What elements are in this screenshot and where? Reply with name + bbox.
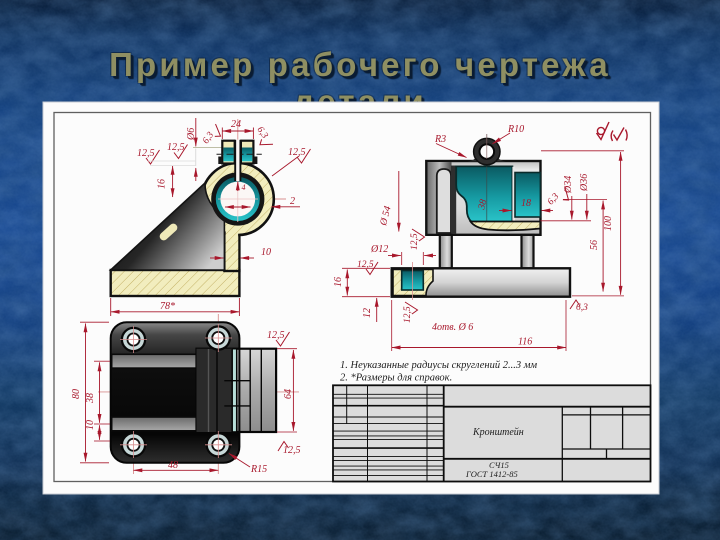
svg-text:6,3: 6,3	[576, 303, 588, 313]
svg-text:Ø34: Ø34	[563, 176, 574, 194]
svg-text:4отв. Ø 6: 4отв. Ø 6	[432, 322, 473, 333]
svg-text:Ø12: Ø12	[370, 244, 388, 255]
svg-text:48: 48	[168, 460, 178, 471]
svg-text:12,5: 12,5	[283, 445, 301, 456]
svg-text:12,5: 12,5	[137, 148, 155, 159]
svg-text:16: 16	[157, 179, 168, 189]
svg-text:12,5: 12,5	[403, 306, 413, 323]
svg-text:56: 56	[589, 240, 600, 250]
svg-text:10: 10	[85, 420, 96, 430]
svg-text:12,5: 12,5	[410, 233, 420, 250]
svg-text:ГОСТ 1412-85: ГОСТ 1412-85	[465, 469, 518, 479]
svg-text:16: 16	[333, 277, 344, 287]
svg-text:78*: 78*	[160, 301, 175, 312]
svg-text:24: 24	[231, 119, 241, 130]
svg-text:2: 2	[290, 196, 295, 207]
svg-text:12: 12	[362, 308, 373, 318]
svg-text:Кронштейн: Кронштейн	[472, 427, 524, 438]
svg-text:18: 18	[521, 198, 531, 209]
svg-text:12,5: 12,5	[288, 147, 306, 158]
svg-text:R15: R15	[250, 464, 267, 475]
svg-text:64: 64	[283, 389, 294, 399]
svg-text:Ø6: Ø6	[186, 128, 197, 141]
svg-text:116: 116	[518, 337, 532, 348]
svg-text:12,5: 12,5	[267, 330, 285, 341]
svg-text:4: 4	[242, 183, 246, 192]
svg-text:2. *Размеры для справок.: 2. *Размеры для справок.	[340, 373, 452, 384]
svg-text:38: 38	[85, 393, 96, 404]
svg-text:Ø36: Ø36	[579, 174, 590, 192]
svg-text:R3: R3	[434, 134, 446, 145]
svg-text:12,5: 12,5	[167, 142, 185, 153]
svg-text:80: 80	[71, 389, 82, 399]
svg-text:100: 100	[603, 216, 614, 231]
svg-text:1. Неуказанные радиусы скругле: 1. Неуказанные радиусы скруглений 2...3 …	[340, 360, 537, 371]
svg-text:10: 10	[261, 247, 271, 258]
